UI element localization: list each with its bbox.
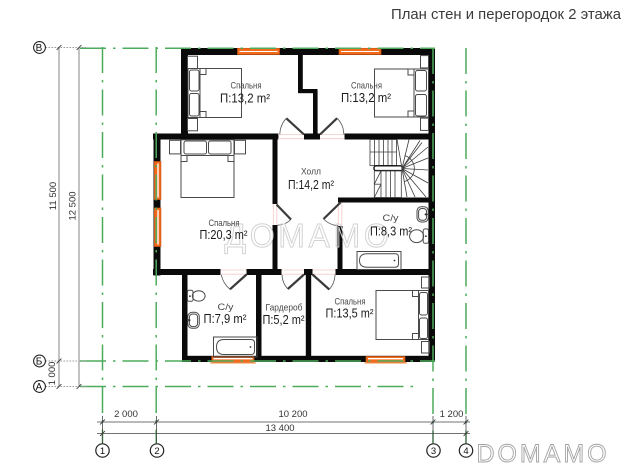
svg-text:План стен и перегородок 2 этаж: План стен и перегородок 2 этажа — [391, 6, 622, 23]
svg-text:13 400: 13 400 — [265, 423, 294, 434]
svg-text:В: В — [36, 43, 43, 54]
svg-text:10 200: 10 200 — [278, 409, 307, 420]
svg-text:П:13,2 m²: П:13,2 m² — [341, 90, 392, 105]
svg-text:11 500: 11 500 — [48, 182, 59, 210]
svg-text:Холл: Холл — [301, 167, 321, 178]
svg-text:2: 2 — [154, 446, 159, 457]
svg-text:П:8,3 m²: П:8,3 m² — [370, 224, 413, 239]
svg-text:1 000: 1 000 — [47, 362, 58, 386]
svg-text:DOMAMO: DOMAMO — [477, 440, 610, 468]
svg-text:П:5,2 m²: П:5,2 m² — [263, 312, 306, 327]
svg-text:12 500: 12 500 — [68, 191, 79, 220]
svg-text:П:7,9 m²: П:7,9 m² — [204, 311, 248, 326]
svg-text:1 200: 1 200 — [440, 409, 464, 420]
svg-text:2 000: 2 000 — [114, 409, 138, 420]
svg-text:П:13,5 m²: П:13,5 m² — [326, 306, 375, 321]
svg-text:С/у: С/у — [383, 213, 399, 224]
svg-text:П:13,2 m²: П:13,2 m² — [220, 91, 271, 106]
svg-text:П:20,3 m²: П:20,3 m² — [200, 227, 249, 242]
svg-text:П:14,2 m²: П:14,2 m² — [288, 177, 335, 192]
svg-text:1: 1 — [100, 446, 105, 457]
svg-text:3: 3 — [431, 446, 436, 457]
svg-text:Б: Б — [36, 357, 43, 368]
svg-text:4: 4 — [463, 446, 468, 457]
svg-text:А: А — [36, 382, 43, 393]
svg-text:ДОМАМО: ДОМАМО — [225, 217, 393, 254]
